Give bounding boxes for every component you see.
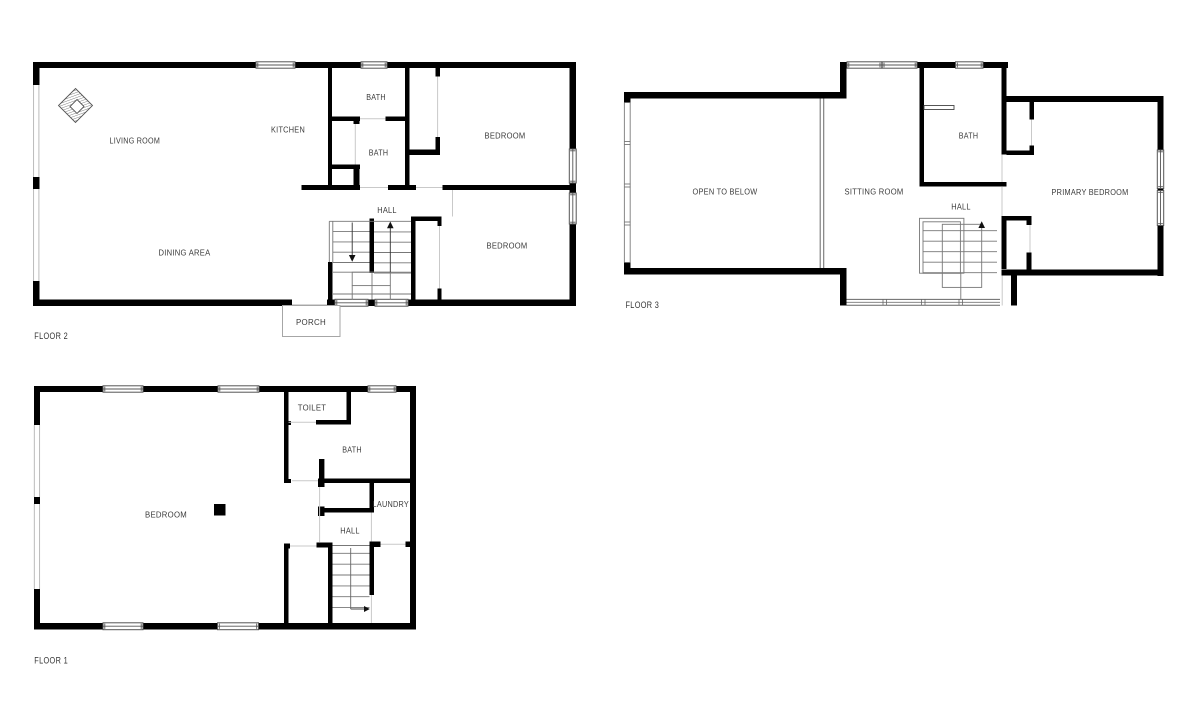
svg-text:TOILET: TOILET	[298, 403, 327, 413]
svg-text:BEDROOM: BEDROOM	[485, 130, 526, 140]
svg-text:FLOOR 1: FLOOR 1	[34, 655, 68, 665]
svg-text:BEDROOM: BEDROOM	[145, 510, 187, 520]
svg-text:BATH: BATH	[369, 147, 389, 157]
svg-text:SITTING ROOM: SITTING ROOM	[845, 187, 904, 197]
svg-text:LAUNDRY: LAUNDRY	[373, 499, 410, 509]
svg-text:LIVING ROOM: LIVING ROOM	[110, 136, 161, 146]
svg-text:PRIMARY BEDROOM: PRIMARY BEDROOM	[1052, 187, 1129, 197]
svg-text:HALL: HALL	[377, 205, 397, 215]
svg-text:FLOOR 3: FLOOR 3	[626, 300, 660, 310]
svg-text:HALL: HALL	[340, 525, 360, 535]
svg-text:BEDROOM: BEDROOM	[487, 240, 528, 250]
svg-text:BATH: BATH	[366, 92, 386, 102]
svg-text:OPEN TO BELOW: OPEN TO BELOW	[693, 187, 758, 197]
svg-text:PORCH: PORCH	[296, 317, 326, 327]
svg-text:KITCHEN: KITCHEN	[271, 125, 305, 135]
svg-text:DINING AREA: DINING AREA	[159, 248, 211, 258]
svg-text:BATH: BATH	[959, 130, 979, 140]
svg-text:BATH: BATH	[342, 445, 362, 455]
svg-text:HALL: HALL	[951, 201, 971, 211]
svg-text:FLOOR 2: FLOOR 2	[34, 331, 68, 341]
